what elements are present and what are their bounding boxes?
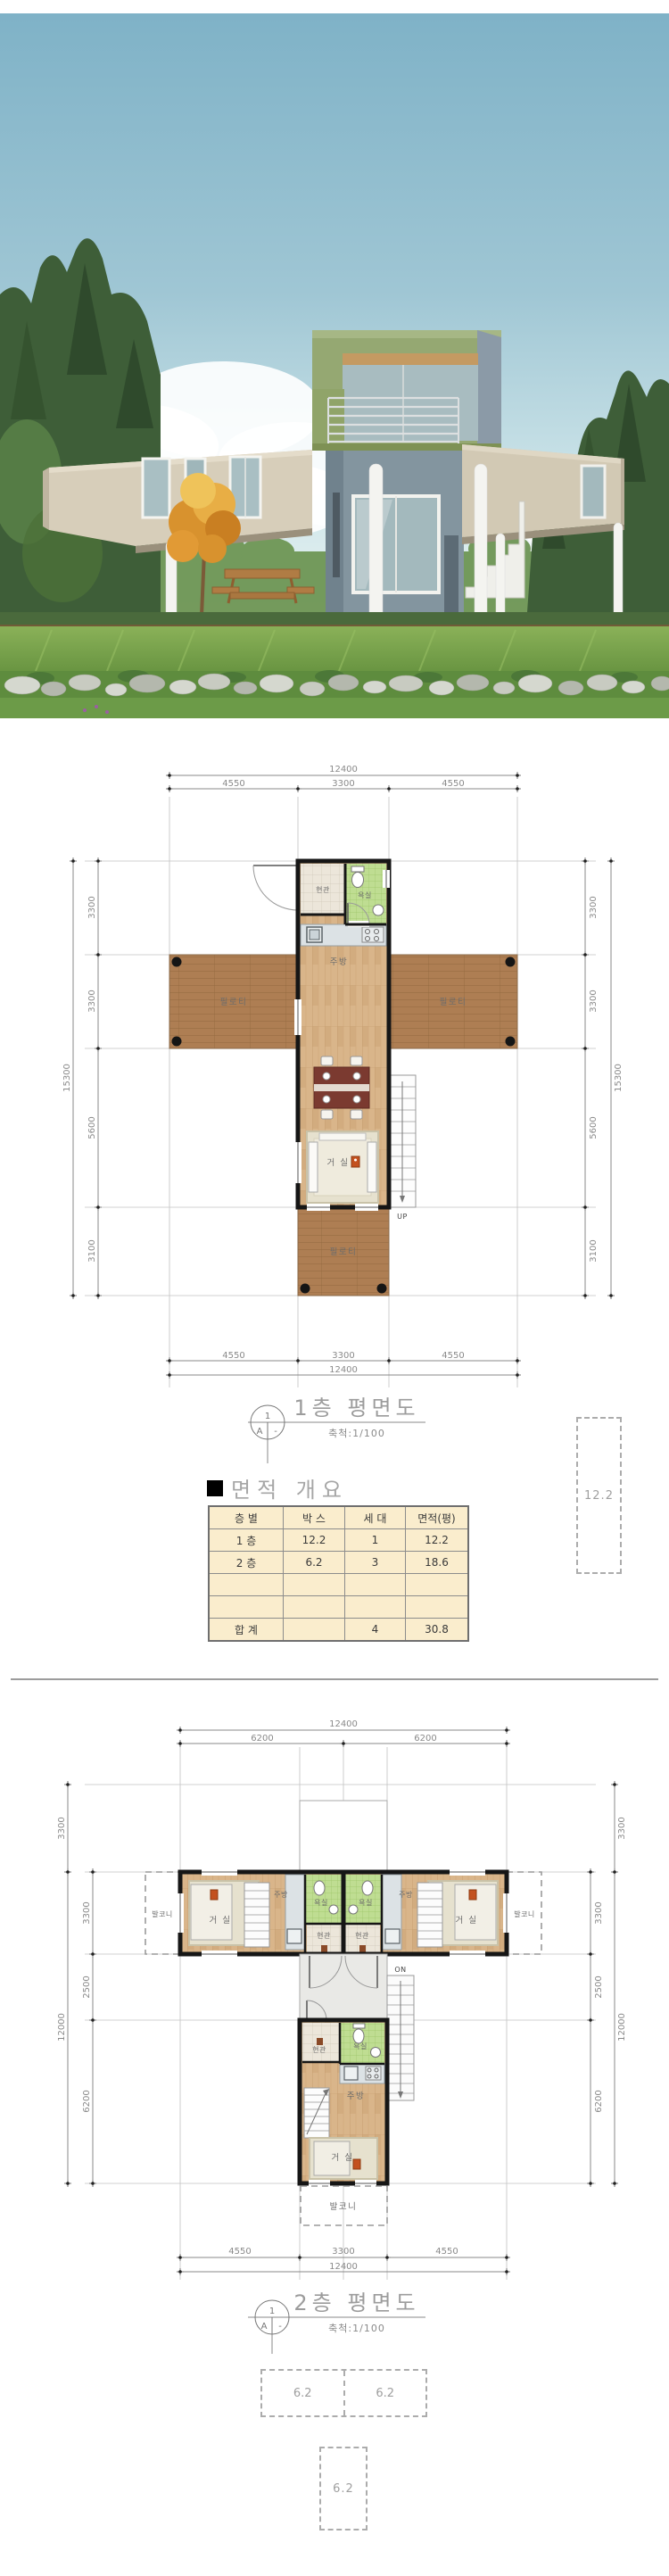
dim-right-total: 15300 [614,1064,624,1092]
stair-direction-label: UP [397,1213,408,1221]
sink-icon [349,1905,358,1914]
dim-right-seg: 3300 [589,896,599,918]
stove-icon [366,2067,381,2080]
dim-left-total: 12000 [57,2013,67,2042]
dim-top-total: 12400 [329,765,358,774]
symbol-dash: - [278,2322,282,2332]
toilet-icon [362,1881,373,1895]
toilet-icon [314,1881,325,1895]
section-divider [11,1678,658,1680]
dim-left-seg: 5600 [87,1116,97,1139]
architecture-presentation-page: 12400 4550 3300 4550 4550 3300 4550 1240… [0,0,669,2576]
room-label-balcony-right: 발코니 [514,1909,535,1918]
kitchen-sink-icon [287,1929,301,1943]
module-annotation-label: 6.2 [345,2371,426,2415]
table-row: 1 층 12.2 1 12.2 [209,1529,468,1552]
dim-bottom-seg: 4550 [228,2247,251,2257]
room-label-living: 거 실 [327,1158,350,1168]
dim-top-seg: 6200 [414,1734,436,1744]
room-label-entry-right: 현관 [355,1931,369,1940]
cell: 12.2 [406,1529,469,1552]
plan2-title: 2층 평면도 [293,2290,419,2315]
dim-bottom-seg: 3300 [332,2247,354,2257]
col-header: 박 스 [284,1506,345,1529]
dim-bottom-total: 12400 [329,1365,358,1375]
room-label-piloti-right: 필로티 [440,997,467,1007]
symbol-dash: - [274,1427,277,1437]
symbol-letter: A [257,1427,263,1437]
room-label-kitchen-lower: 주방 [347,2091,365,2101]
table-row: 2 층 6.2 3 18.6 [209,1552,468,1574]
stair-direction-label: ON [394,1966,406,1974]
table-header-row: 층 별 박 스 세 대 면적(평) [209,1506,468,1529]
entry-door [253,866,298,910]
toilet-icon [351,866,364,888]
exterior-stairs [387,1975,414,2100]
dim-left-seg: 3300 [87,896,97,918]
module-annotation-box-vertical: 6.2 [319,2447,368,2530]
tv-icon [353,2159,360,2169]
cell [284,1574,345,1596]
cell: 18.6 [406,1552,469,1574]
roof-deck [300,1954,387,2020]
floor-plan-2f: 12400 6200 6200 4550 3300 4550 12400 330… [0,1718,669,2356]
dim-left-seg: 2500 [82,1975,92,1998]
dim-top-seg: 4550 [442,779,464,789]
cell: 3 [345,1552,406,1574]
room-label-living-left: 거 실 [210,1916,232,1926]
floor-plan-1f: 12400 4550 3300 4550 4550 3300 4550 1240… [0,763,669,1486]
plan1-title-block: 1 A - 1층 평면도 축척:1/100 [248,1396,425,1463]
room-label-kitchen-right: 주방 [399,1890,413,1899]
dim-right-seg: 3100 [589,1239,599,1262]
plan1-scale: 축척:1/100 [328,1428,385,1439]
dim-bottom-seg: 4550 [442,1351,464,1361]
cell: 6.2 [284,1552,345,1574]
dim-top-seg: 4550 [222,779,244,789]
room-label-bath: 욕실 [358,890,372,899]
room-label-balcony-left: 발코니 [152,1909,173,1918]
module-annotation-box-1f: 12.2 [576,1417,622,1574]
table-total-row: 합 계 4 30.8 [209,1619,468,1642]
cell [284,1619,345,1642]
room-label-living-lower: 거 실 [332,2153,354,2163]
dim-right-seg: 3300 [589,990,599,1012]
dim-bottom-total: 12400 [329,2262,358,2272]
room-label-entry-lower: 현관 [312,2045,326,2054]
shoe-cabinet-icon [359,1945,366,1952]
col-header: 층 별 [209,1506,284,1529]
cell [345,1596,406,1619]
dim-bottom-seg: 4550 [435,2247,458,2257]
lower-floor-outline [300,1801,387,1872]
dim-top-seg: 6200 [251,1734,273,1744]
cell [209,1596,284,1619]
dim-right-seg: 3300 [617,1817,627,1839]
tv-icon-dot [354,1159,357,1162]
plan2-scale: 축척:1/100 [328,2323,385,2334]
room-label-bath-left: 욕실 [314,1898,328,1907]
dim-right-total: 12000 [617,2013,627,2042]
cell [345,1574,406,1596]
area-summary-heading: 면적 개요 [207,1472,348,1503]
dim-left-seg: 6200 [82,2090,92,2112]
upper-box [312,330,501,451]
dim-left-seg: 3100 [87,1239,97,1262]
table-row [209,1574,468,1596]
sink-icon [329,1905,338,1914]
dim-top-total: 12400 [329,1719,358,1729]
sink-icon [373,905,384,915]
cell: 1 층 [209,1529,284,1552]
tv-icon [469,1890,476,1900]
cell: 30.8 [406,1619,469,1642]
toilet-icon [353,2024,365,2043]
right-unit [345,1875,498,1954]
room-label-balcony-bottom: 발코니 [330,2202,358,2212]
dim-bottom-seg: 3300 [332,1351,354,1361]
left-unit [189,1875,342,1954]
cell [284,1596,345,1619]
room-label-entry: 현관 [316,885,330,894]
dim-top-seg: 3300 [332,779,354,789]
module-annotation-label: 6.2 [333,2482,354,2496]
cell [406,1574,469,1596]
cell: 2 층 [209,1552,284,1574]
dim-left-total: 15300 [62,1064,72,1092]
tv-icon [351,1156,359,1167]
grass-slope [0,626,669,673]
room-label-piloti-left: 필로티 [220,997,248,1007]
cell: 12.2 [284,1529,345,1552]
dim-left-seg: 3300 [87,990,97,1012]
symbol-letter: A [261,2322,268,2332]
dim-left-seg: 3300 [57,1817,67,1839]
cell [406,1596,469,1619]
dim-right-seg: 5600 [589,1116,599,1139]
room-label-kitchen: 주방 [330,957,348,967]
cell [209,1574,284,1596]
shoe-cabinet-icon [317,2038,323,2045]
col-header: 면적(평) [406,1506,469,1529]
dim-right-seg: 3300 [594,1901,604,1924]
hedge [0,612,669,626]
symbol-number: 1 [269,2307,275,2316]
shoe-cabinet-icon [321,1945,327,1952]
room-label-bath-lower: 욕실 [353,2042,368,2050]
symbol-number: 1 [265,1412,270,1421]
foreground-grass [0,698,669,718]
area-summary-table: 층 별 박 스 세 대 면적(평) 1 층 12.2 1 12.2 2 층 6.… [208,1505,469,1642]
kitchen-sink-basin [310,930,319,940]
kitchen-sink-icon [344,2067,358,2080]
cell: 4 [345,1619,406,1642]
module-annotation-label: 6.2 [262,2371,345,2415]
tv-icon [211,1890,218,1900]
stairs [389,1075,416,1207]
room-label-kitchen-left: 주방 [274,1890,288,1899]
cell: 합 계 [209,1619,284,1642]
col-header: 세 대 [345,1506,406,1529]
module-annotation-label: 12.2 [584,1489,614,1503]
cell: 1 [345,1529,406,1552]
room-label-piloti-bottom: 필로티 [330,1247,358,1257]
heading-bullet-square [207,1480,223,1496]
room-label-living-right: 거 실 [456,1916,478,1926]
table-row [209,1596,468,1619]
interior-stairs [304,2088,329,2138]
heading-text: 면적 개요 [231,1472,348,1503]
stove-icon [362,927,384,942]
module-annotation-pair-2f: 6.2 6.2 [260,2369,427,2417]
dim-bottom-seg: 4550 [222,1351,244,1361]
kitchen-sink-icon [385,1929,400,1943]
dim-left-seg: 3300 [82,1901,92,1924]
dim-right-seg: 2500 [594,1975,604,1998]
plan2-title-block: 1 A - 2층 평면도 축척:1/100 [248,2290,425,2354]
room-label-entry-left: 현관 [317,1931,331,1940]
plan1-title: 1층 평면도 [293,1396,419,1421]
hero-rendering [0,13,669,718]
room-label-bath-right: 욕실 [359,1898,373,1907]
dim-right-seg: 6200 [594,2090,604,2112]
sink-icon [371,2048,381,2058]
